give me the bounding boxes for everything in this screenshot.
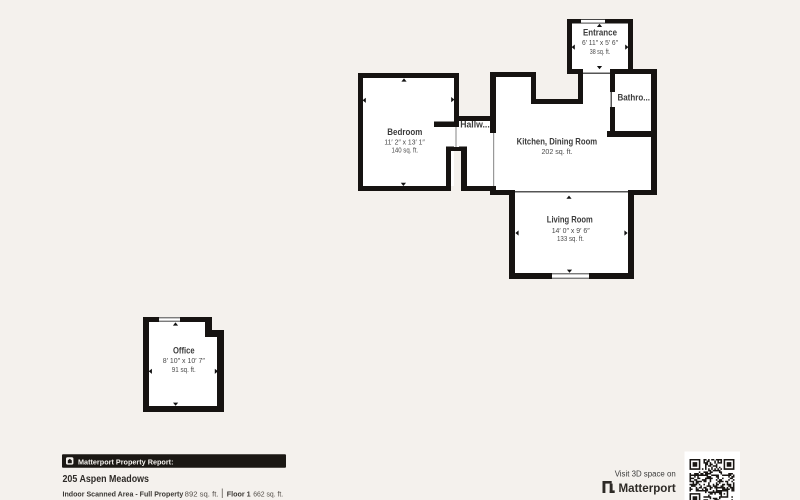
svg-text:Visit 3D space on: Visit 3D space on bbox=[615, 469, 676, 478]
svg-text:Indoor Scanned Area - Full Pro: Indoor Scanned Area - Full Property bbox=[63, 489, 185, 498]
svg-text:Living Room: Living Room bbox=[547, 214, 593, 224]
svg-text:38 sq. ft.: 38 sq. ft. bbox=[590, 49, 611, 56]
svg-text:Bedroom: Bedroom bbox=[387, 127, 422, 137]
svg-text:Entrance: Entrance bbox=[583, 28, 617, 38]
svg-text:662 sq. ft.: 662 sq. ft. bbox=[253, 489, 283, 498]
svg-text:202 sq. ft.: 202 sq. ft. bbox=[542, 149, 573, 156]
svg-text:11′ 2″ x 13′ 1″: 11′ 2″ x 13′ 1″ bbox=[384, 140, 425, 147]
svg-text:Office: Office bbox=[173, 345, 195, 355]
svg-text:Hallw...: Hallw... bbox=[460, 120, 490, 130]
svg-text:133 sq. ft.: 133 sq. ft. bbox=[557, 236, 584, 243]
svg-text:205 Aspen Meadows: 205 Aspen Meadows bbox=[63, 474, 150, 485]
svg-text:8′ 10″ x 10′ 7″: 8′ 10″ x 10′ 7″ bbox=[163, 358, 206, 365]
svg-text:14′ 0″ x 9′ 6″: 14′ 0″ x 9′ 6″ bbox=[552, 228, 591, 235]
svg-text:Matterport Property Report:: Matterport Property Report: bbox=[78, 457, 174, 466]
svg-text:Kitchen, Dining Room: Kitchen, Dining Room bbox=[517, 136, 598, 146]
svg-text:Floor 1: Floor 1 bbox=[227, 489, 251, 498]
svg-text:892 sq. ft.: 892 sq. ft. bbox=[185, 489, 219, 498]
svg-text:6′ 11″ x 5′ 6″: 6′ 11″ x 5′ 6″ bbox=[582, 40, 618, 47]
svg-text:91 sq. ft.: 91 sq. ft. bbox=[172, 367, 196, 374]
svg-text:Matterport: Matterport bbox=[619, 483, 676, 495]
svg-text:Bathro...: Bathro... bbox=[617, 92, 650, 102]
svg-text:140 sq. ft.: 140 sq. ft. bbox=[392, 147, 419, 154]
